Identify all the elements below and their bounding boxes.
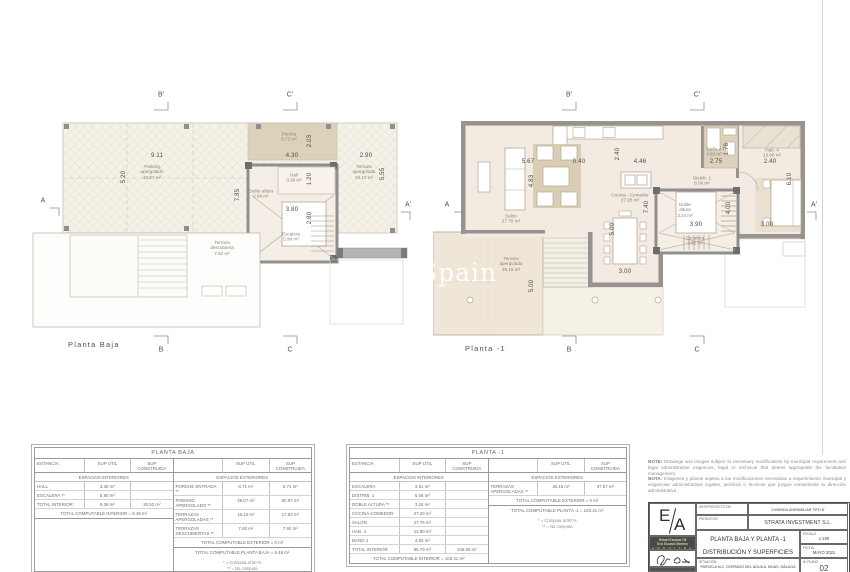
footnote-2: ** = No computa	[174, 566, 312, 572]
plan-caption: Planta Baja	[68, 340, 120, 349]
table-cell: 27.76 m²	[400, 518, 447, 526]
table-cell: 50.97 m²	[270, 496, 311, 509]
interior-header: ESPACIOS INTERIORES	[35, 473, 173, 482]
planta-baja-drawing	[30, 82, 420, 377]
legal-notes: NOTE: Drawings and images subject to nec…	[648, 459, 846, 494]
floorplan-planta-menos1: B'C'AA'BC5.670.402.404.462.751.762.404.8…	[433, 82, 833, 377]
table-cell: BAÑO 4	[350, 536, 400, 544]
table-cell: 8.71 m²	[223, 482, 270, 495]
table-cell: 37.57 m²	[585, 482, 626, 495]
table-cell: 48.07 m²	[223, 496, 270, 509]
interior-rows: HALL3.36 m²ESCALERA **5.90 m²TOTAL INTER…	[35, 482, 173, 509]
signature-scribble	[650, 551, 696, 567]
table-cell: 106.65 m²	[446, 545, 487, 553]
sheet-title-line2: DISTRIBUCIÓN Y SUPERFICIES	[697, 549, 799, 557]
table-cell: 9.26 m²	[85, 500, 132, 508]
watermark: Spain	[420, 258, 497, 287]
plano-value: 02	[801, 564, 847, 572]
table-row: TERRAZAS DESCUBIERTAS **7.92 m²7.92 m²	[174, 524, 312, 538]
table-row: BAÑO 44.83 m²	[350, 536, 488, 545]
table-cell: 5.90 m²	[85, 491, 132, 499]
situacion-label: SITUACIÓN:	[697, 559, 799, 564]
firm-logo: E A	[649, 503, 696, 536]
table-row: PORCHE ENTRADA **8.71 m²8.71 m²	[174, 482, 312, 496]
anteproyecto-label: ANTEPROYECTO DE:	[697, 504, 747, 509]
table-cell	[446, 491, 487, 499]
table-cell	[446, 527, 487, 535]
table-cell: 20.52 m²	[131, 500, 172, 508]
table-cell	[446, 482, 487, 490]
table-cell: 3.91 m²	[400, 482, 447, 490]
col-estancia: ESTANCIA	[35, 459, 85, 472]
exterior-rows: TERRAZAS APERGOLADAS **36.15 m²37.57 m²	[489, 482, 627, 496]
note-es-label: NOTA:	[648, 476, 662, 481]
col-sup-construida: SUP CONSTRUIDA	[131, 459, 172, 472]
interior-rows: ESCALERA3.91 m²DISTRIB. 16.06 m²DOBLE AL…	[350, 482, 488, 554]
table-cell	[131, 491, 172, 499]
drawing-sheet: B'C'AA'BC9.114.302.905.202.031.203.802.8…	[0, 0, 850, 572]
table-cell: TOTAL INTERIOR	[350, 545, 400, 553]
col-sup-util: SUP ÚTIL	[400, 459, 447, 472]
escala-value: 1:100	[801, 536, 847, 541]
exterior-total: TOTAL COMPUTABLE EXTERIOR = 0 m²	[174, 538, 312, 548]
table-cell: ESCALERA **	[35, 491, 85, 499]
table-cell: 85.79 m²	[400, 545, 447, 553]
table-cell: TOTAL INTERIOR	[35, 500, 85, 508]
table-row: DOBLE ALTURA **3.24 m²	[350, 500, 488, 509]
table-row: ESCALERA3.91 m²	[350, 482, 488, 491]
signature	[649, 550, 696, 567]
table-cell: 17.83 m²	[270, 510, 311, 523]
col-sup-util: SUP ÚTIL	[223, 459, 270, 472]
table-cell: ESCALERA	[350, 482, 400, 490]
col-estancia: ESTANCIA	[350, 459, 400, 472]
note-en-label: NOTE:	[648, 459, 662, 464]
table-cell: 13.90 m²	[400, 527, 447, 535]
fecha-value: MAYO 2021	[801, 550, 847, 555]
exterior-header: ESPACIOS EXTERIORES	[489, 473, 627, 482]
table-cell: PORCHE ENTRADA **	[174, 482, 224, 495]
logo-letter-a: A	[674, 515, 685, 535]
logo-letter-e: E	[659, 506, 670, 526]
anteproyecto-value: VIVIENDA UNIFAMILIAR TIPO B'	[749, 508, 847, 512]
col-sup-construida: SUP CONSTRUIDA	[585, 459, 626, 472]
table-cell: PARKING APERGOLADO **	[174, 496, 224, 509]
table-cell: 7.92 m²	[270, 524, 311, 537]
table-row: TOTAL INTERIOR85.79 m²106.65 m²	[350, 545, 488, 554]
floorplan-planta-baja: B'C'AA'BC9.114.302.905.202.031.203.802.8…	[30, 82, 420, 377]
table-cell: HALL	[35, 482, 85, 490]
table-cell: 8.71 m²	[270, 482, 311, 495]
note-es-text: Imágenes y planos sujetos a las modifica…	[648, 476, 846, 493]
interior-total: TOTAL COMPUTABLE INTERIOR = 8.48 m²	[35, 509, 173, 519]
table-cell	[446, 536, 487, 544]
table-row: SALÓN27.76 m²	[350, 518, 488, 527]
table-cell	[446, 509, 487, 517]
situacion-value: PARCELA M-2, CERRADO DEL ÁGUILA, MIJAS, …	[697, 565, 799, 569]
table-title: PLANTA BAJA	[35, 448, 311, 459]
table-row: ESCALERA **5.90 m²	[35, 491, 173, 500]
interior-header: ESPACIOS INTERIORES	[350, 473, 488, 482]
table-cell: 36.15 m²	[538, 482, 585, 495]
grand-total: TOTAL COMPUTABLE PLANTA BAJA = 8.48 m²	[174, 548, 312, 557]
table-cell	[131, 482, 172, 490]
grand-total: TOTAL COMPUTABLE PLANTA -1 = 103.41 m²	[489, 506, 627, 515]
table-cell: DISTRIB. 1	[350, 491, 400, 499]
promotor-value: STRATA INVESTMENT S.L.	[749, 520, 847, 526]
stamp-band	[649, 567, 696, 572]
footnote-2: ** = No computa	[489, 524, 627, 530]
exterior-rows: PORCHE ENTRADA **8.71 m²8.71 m²PARKING A…	[174, 482, 312, 538]
table-row: COCINA-COMEDOR27.28 m²	[350, 509, 488, 518]
table-cell: HAB. 4	[350, 527, 400, 535]
firm-name-band: Rafael Escassi Gil Eva Escassi Moreno A …	[649, 536, 696, 550]
note-en-text: Drawings and images subject to necessary…	[648, 459, 846, 476]
surface-table-planta-menos1: PLANTA -1 ESTANCIA SUP ÚTIL SUP CONSTRUI…	[346, 444, 630, 567]
col-sup-util: SUP ÚTIL	[85, 459, 132, 472]
table-cell: DOBLE ALTURA **	[350, 500, 400, 508]
col-sup-construida: SUP CONSTRUIDA	[446, 459, 487, 472]
table-cell	[446, 500, 487, 508]
table-cell: 6.06 m²	[400, 491, 447, 499]
col-sup-util: SUP ÚTIL	[538, 459, 585, 472]
exterior-header: ESPACIOS EXTERIORES	[174, 473, 312, 482]
table-cell	[446, 518, 487, 526]
table-cell: SALÓN	[350, 518, 400, 526]
table-cell: 3.24 m²	[400, 500, 447, 508]
table-cell: TERRAZAS DESCUBIERTAS **	[174, 524, 224, 537]
table-row: TOTAL INTERIOR9.26 m²20.52 m²	[35, 500, 173, 509]
table-cell: 4.83 m²	[400, 536, 447, 544]
interior-total: TOTAL COMPUTABLE INTERIOR = 103.41 m²	[350, 554, 488, 563]
exterior-total: TOTAL COMPUTABLE EXTERIOR = 0 m²	[489, 496, 627, 506]
table-row: DISTRIB. 16.06 m²	[350, 491, 488, 500]
table-row: TERRAZAS APERGOLADAS **36.15 m²37.57 m²	[489, 482, 627, 496]
table-cell: COCINA-COMEDOR	[350, 509, 400, 517]
planta-menos1-drawing	[433, 82, 833, 377]
sheet-title-line1: PLANTA BAJA Y PLANTA -1	[697, 536, 799, 544]
plan-caption: Planta -1	[465, 344, 506, 353]
table-cell: 16.10 m²	[223, 510, 270, 523]
col-sup-construida: SUP CONSTRUIDA	[270, 459, 311, 472]
table-row: HAB. 413.90 m²	[350, 527, 488, 536]
table-row: TERRAZAS APERGOLADAS **16.10 m²17.83 m²	[174, 510, 312, 524]
table-cell: TERRAZAS APERGOLADAS **	[489, 482, 539, 495]
table-cell: 3.36 m²	[85, 482, 132, 490]
table-cell: 7.92 m²	[223, 524, 270, 537]
table-row: HALL3.36 m²	[35, 482, 173, 491]
promotor-label: PROMOTOR:	[697, 516, 747, 521]
table-cell: TERRAZAS APERGOLADAS **	[174, 510, 224, 523]
table-cell: 27.28 m²	[400, 509, 447, 517]
table-title: PLANTA -1	[350, 448, 626, 459]
surface-table-planta-baja: PLANTA BAJA ESTANCIA SUP ÚTIL SUP CONSTR…	[31, 444, 315, 572]
title-block: E A Rafael Escassi Gil Eva Escassi Moren…	[648, 502, 850, 572]
table-row: PARKING APERGOLADO **48.07 m²50.97 m²	[174, 496, 312, 510]
